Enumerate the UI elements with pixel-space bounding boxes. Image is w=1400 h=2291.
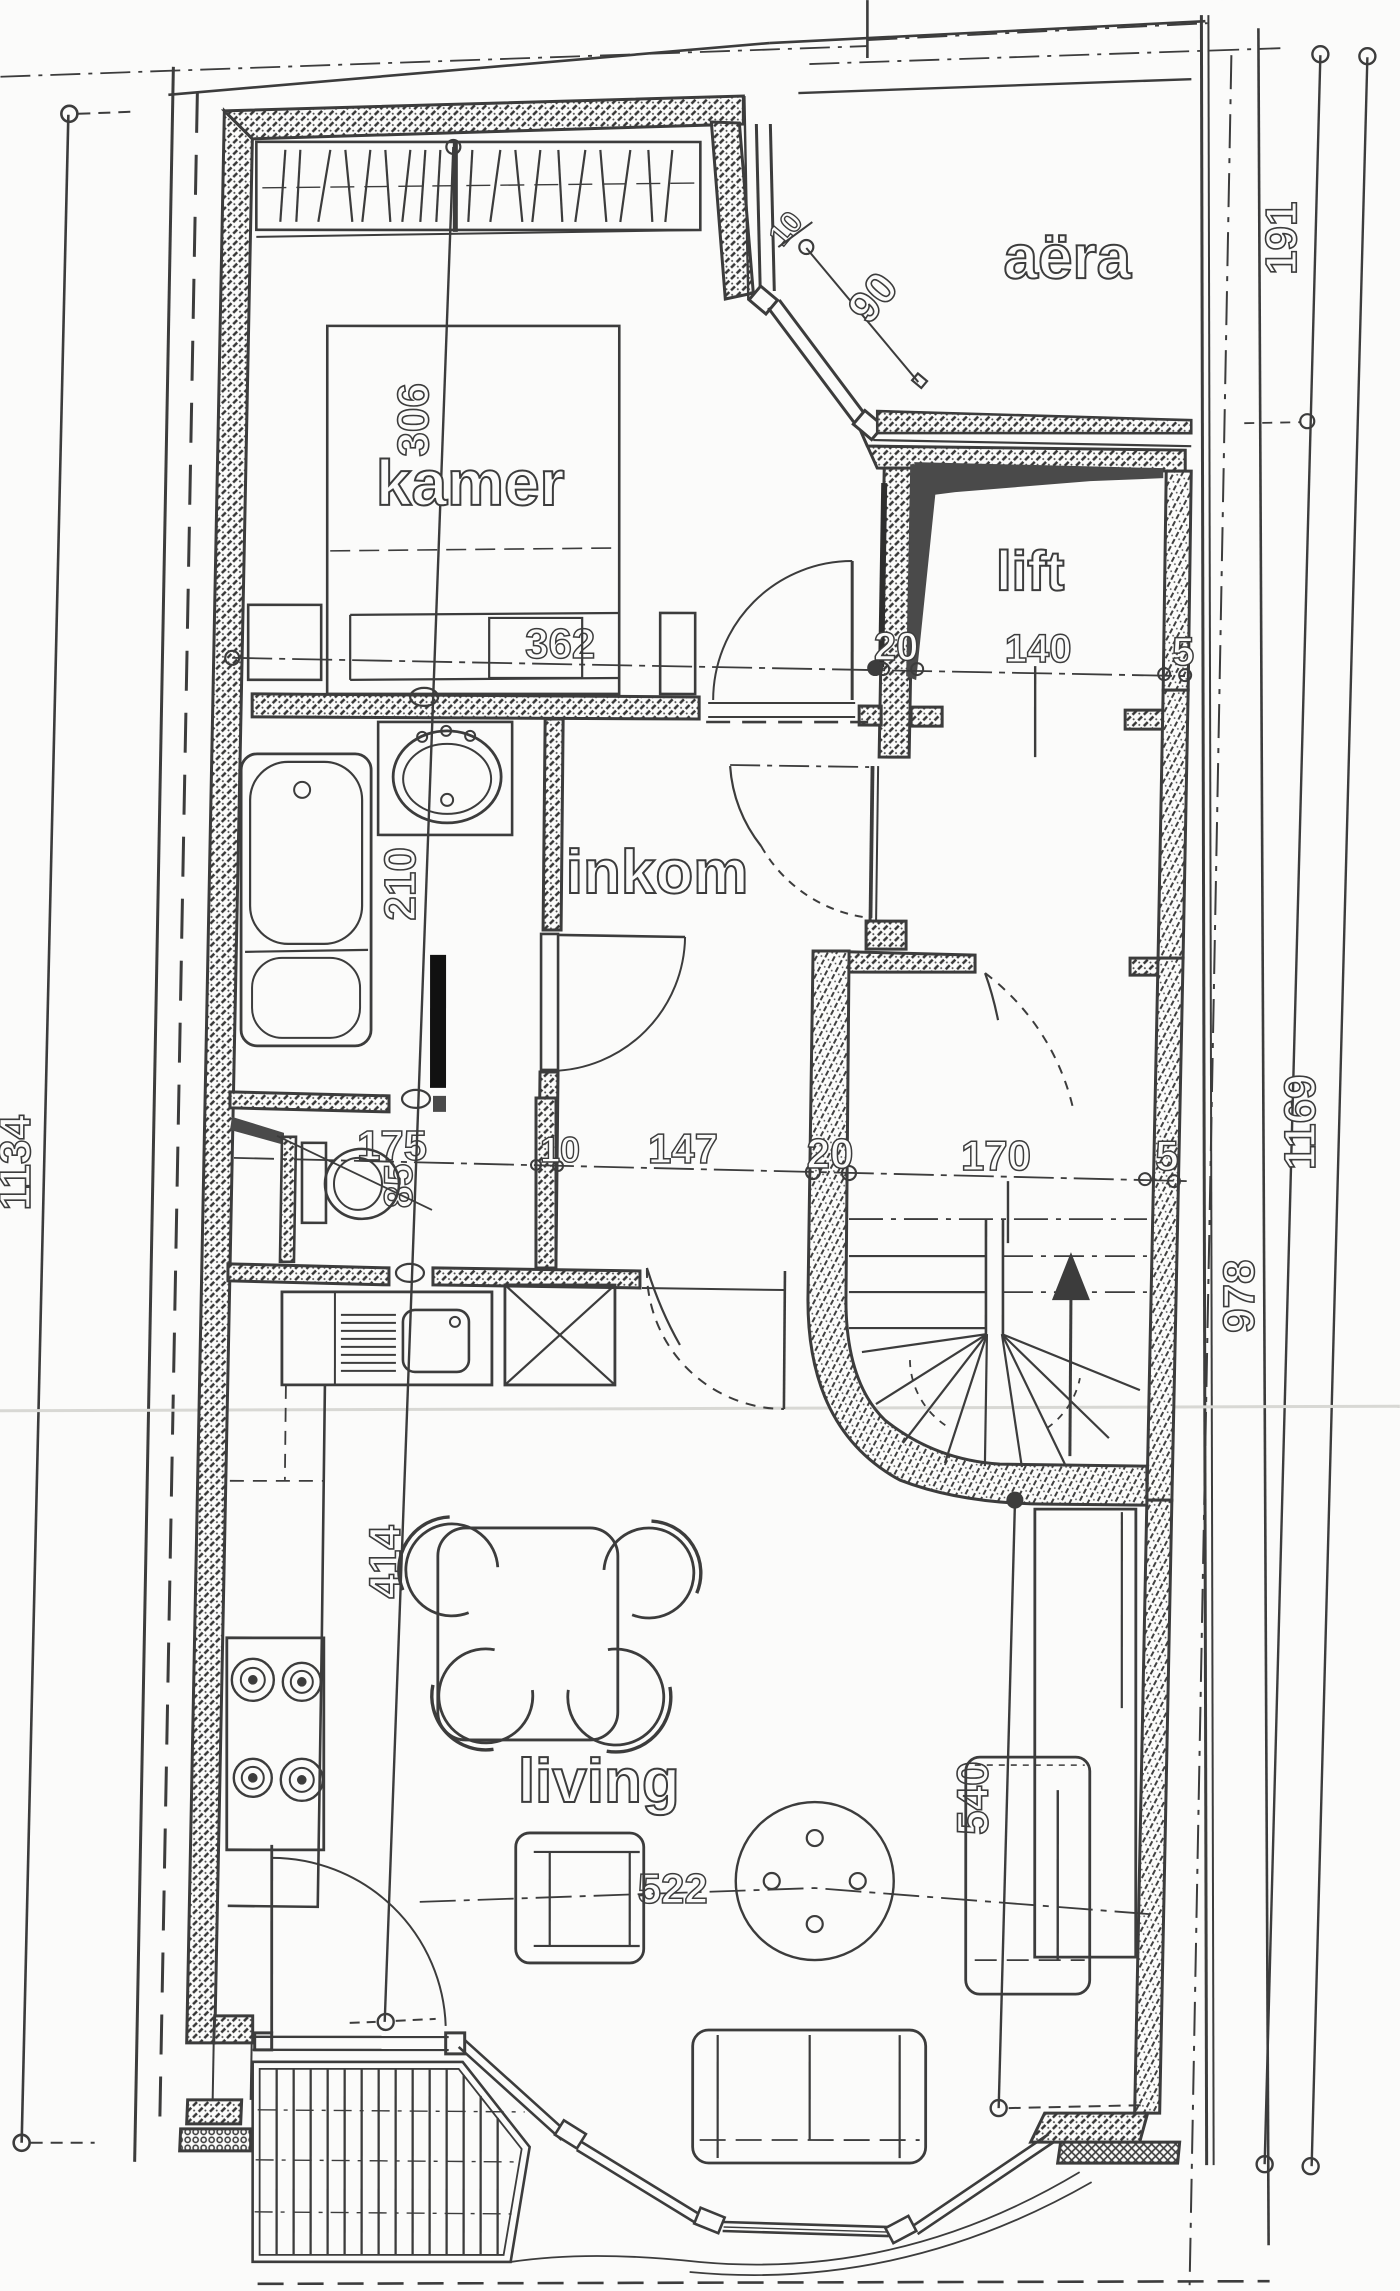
svg-text:5: 5 [1172,630,1194,674]
svg-text:lift: lift [996,539,1064,602]
svg-text:210: 210 [376,847,425,920]
svg-text:540: 540 [949,1761,998,1834]
svg-text:aëra: aëra [1004,223,1132,292]
svg-text:978: 978 [1215,1259,1264,1332]
svg-text:5: 5 [1155,1132,1178,1179]
svg-text:20: 20 [874,625,919,669]
svg-text:522: 522 [638,1865,708,1912]
svg-text:inkom: inkom [566,838,749,907]
svg-text:1169: 1169 [1276,1074,1325,1169]
svg-text:147: 147 [648,1125,718,1172]
svg-text:170: 170 [961,1132,1031,1179]
svg-text:1134: 1134 [0,1115,40,1211]
svg-text:10: 10 [540,1129,580,1170]
svg-text:306: 306 [389,383,438,456]
svg-text:362: 362 [525,620,595,667]
svg-text:140: 140 [1005,627,1072,671]
svg-text:20: 20 [807,1130,854,1177]
svg-text:living: living [518,1747,680,1816]
svg-text:kamer: kamer [376,447,565,519]
svg-text:90: 90 [839,263,908,332]
svg-text:191: 191 [1257,201,1306,274]
